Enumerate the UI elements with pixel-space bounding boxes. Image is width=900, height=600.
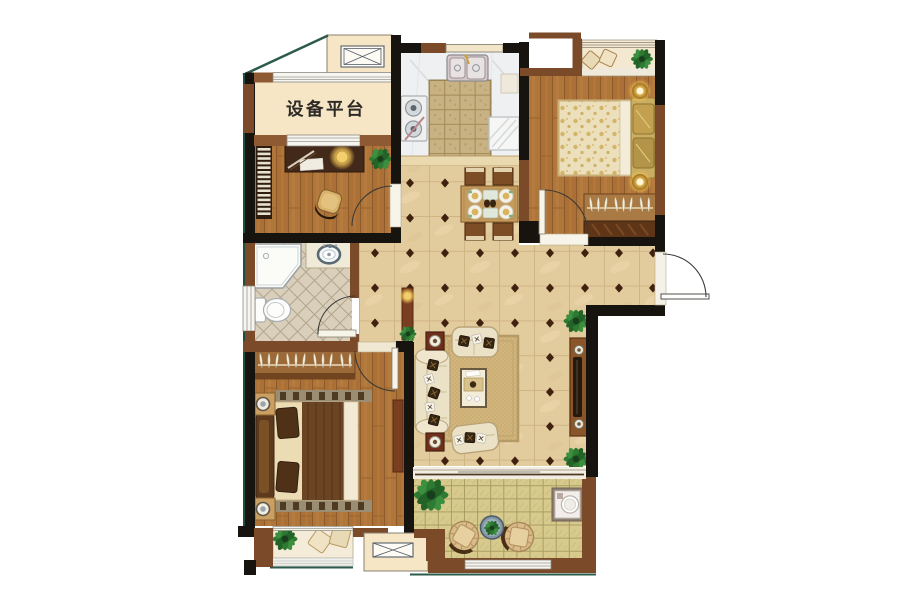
svg-text:设备平台: 设备平台	[286, 99, 366, 119]
